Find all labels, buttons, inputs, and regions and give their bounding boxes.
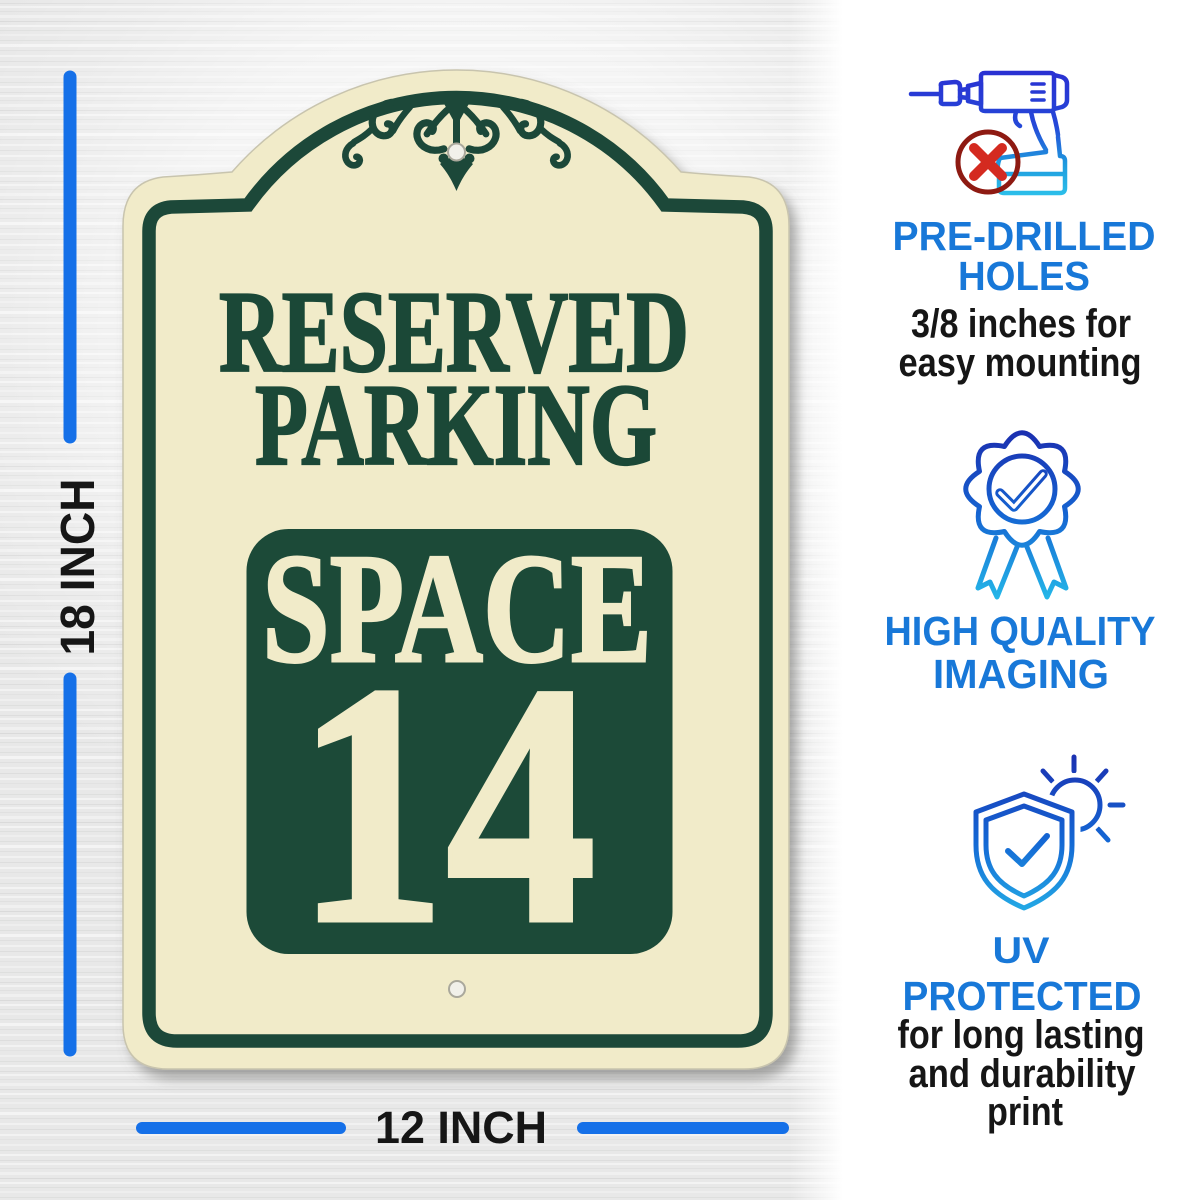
svg-text:PARKING: PARKING [255,361,657,490]
svg-text:12 INCH: 12 INCH [375,1102,547,1153]
svg-text:HIGH QUALITY: HIGH QUALITY [885,608,1156,654]
svg-text:easy mounting: easy mounting [899,341,1142,385]
svg-text:for long lasting: for long lasting [898,1013,1145,1057]
svg-text:print: print [987,1090,1063,1134]
svg-text:14: 14 [296,614,596,995]
svg-text:18 INCH: 18 INCH [52,479,105,656]
svg-text:UV: UV [993,930,1050,971]
svg-text:HOLES: HOLES [958,253,1090,299]
svg-text:3/8 inches for: 3/8 inches for [911,302,1131,346]
svg-text:IMAGING: IMAGING [933,651,1109,697]
